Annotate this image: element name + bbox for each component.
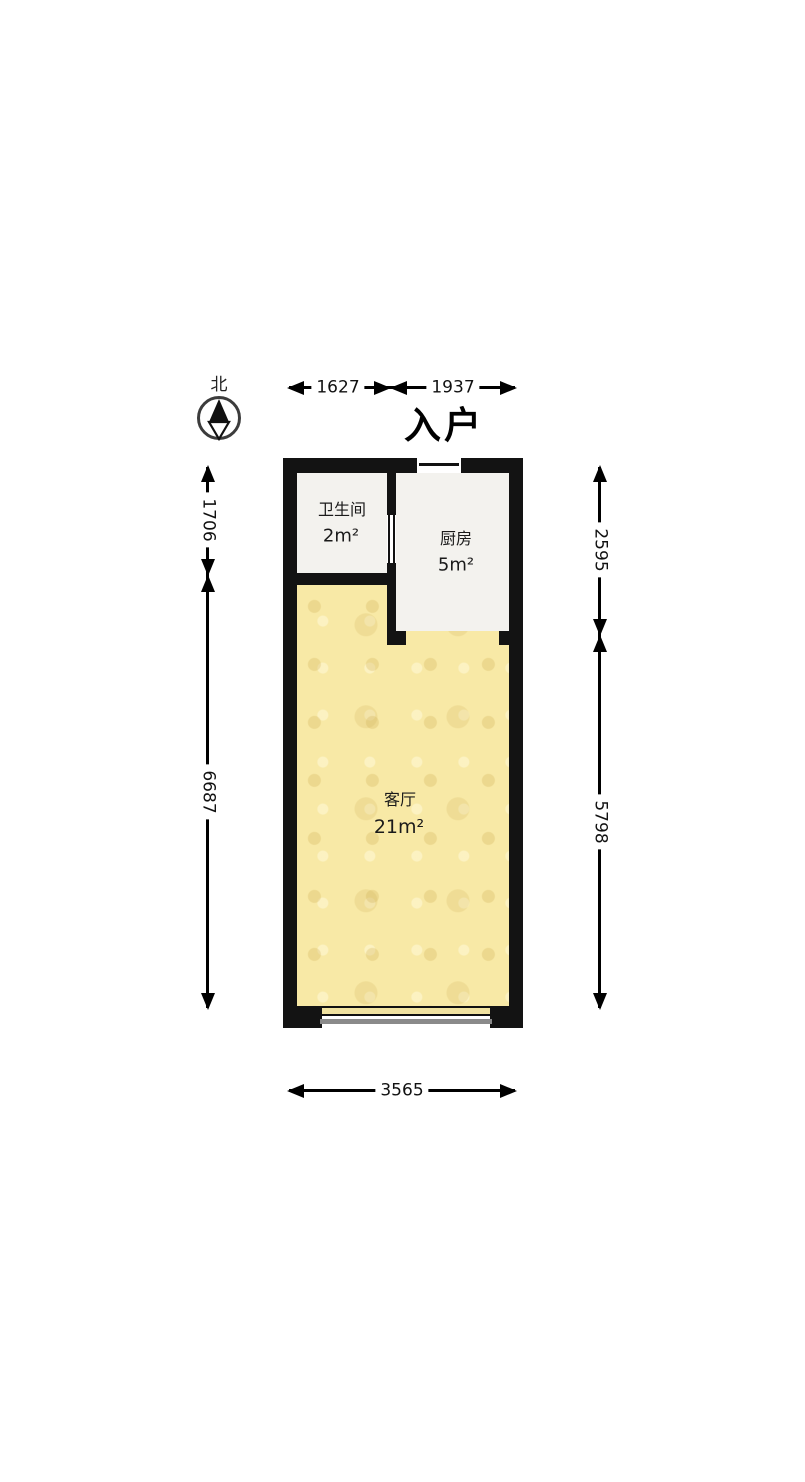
wall-bathroom-bottom — [290, 573, 396, 585]
dim-line-left — [206, 467, 209, 1008]
wall-right — [509, 458, 523, 1028]
arrow-right-icon — [500, 381, 517, 395]
arrow-down-icon — [201, 993, 215, 1010]
wall-top — [283, 458, 523, 473]
wall-kitchen-stub-right — [499, 631, 509, 645]
arrow-down-icon — [593, 993, 607, 1010]
kitchen-area: 5m² — [438, 555, 474, 576]
kitchen-name: 厨房 — [440, 525, 472, 549]
floor-plan-page: 北 1627 1937 入户 1706 6687 2595 5798 3565 — [0, 0, 805, 1482]
dim-top-left: 1627 — [311, 379, 364, 398]
wall-left — [283, 458, 297, 1028]
arrow-left-icon — [287, 1084, 304, 1098]
dim-bottom: 3565 — [375, 1081, 428, 1100]
living-room-area: 21m² — [374, 816, 424, 838]
dim-left-lower: 6687 — [199, 764, 218, 819]
dim-right-upper: 2595 — [591, 522, 610, 577]
window-line — [322, 1014, 490, 1016]
junction-tick-icon — [374, 381, 391, 395]
wall-bottom-right-cap — [490, 1006, 523, 1028]
arrow-up-icon — [593, 465, 607, 482]
living-room-name: 客厅 — [384, 786, 416, 810]
entrance-door-line — [419, 463, 459, 466]
bathroom-area: 2m² — [323, 526, 359, 547]
junction-tick-icon — [593, 619, 607, 636]
bathroom-floor — [297, 473, 387, 573]
compass-icon — [195, 394, 243, 442]
bathroom-door-line — [388, 515, 390, 563]
window-shadow-line — [320, 1019, 492, 1024]
arrow-up-icon — [201, 465, 215, 482]
bathroom-door-line — [393, 515, 395, 563]
compass-north-label: 北 — [211, 370, 228, 395]
dim-left-upper: 1706 — [199, 492, 218, 547]
dim-right-lower: 5798 — [591, 794, 610, 849]
wall-kitchen-stub-left — [387, 631, 406, 645]
kitchen-floor — [396, 473, 509, 631]
junction-tick-icon — [201, 559, 215, 576]
junction-tick-icon — [593, 635, 607, 652]
wall-bottom-left-cap — [283, 1006, 322, 1028]
bathroom-name: 卫生间 — [318, 496, 366, 520]
junction-tick-icon — [390, 381, 407, 395]
entrance-label: 入户 — [404, 395, 484, 449]
arrow-right-icon — [500, 1084, 517, 1098]
arrow-left-icon — [287, 381, 304, 395]
junction-tick-icon — [201, 575, 215, 592]
